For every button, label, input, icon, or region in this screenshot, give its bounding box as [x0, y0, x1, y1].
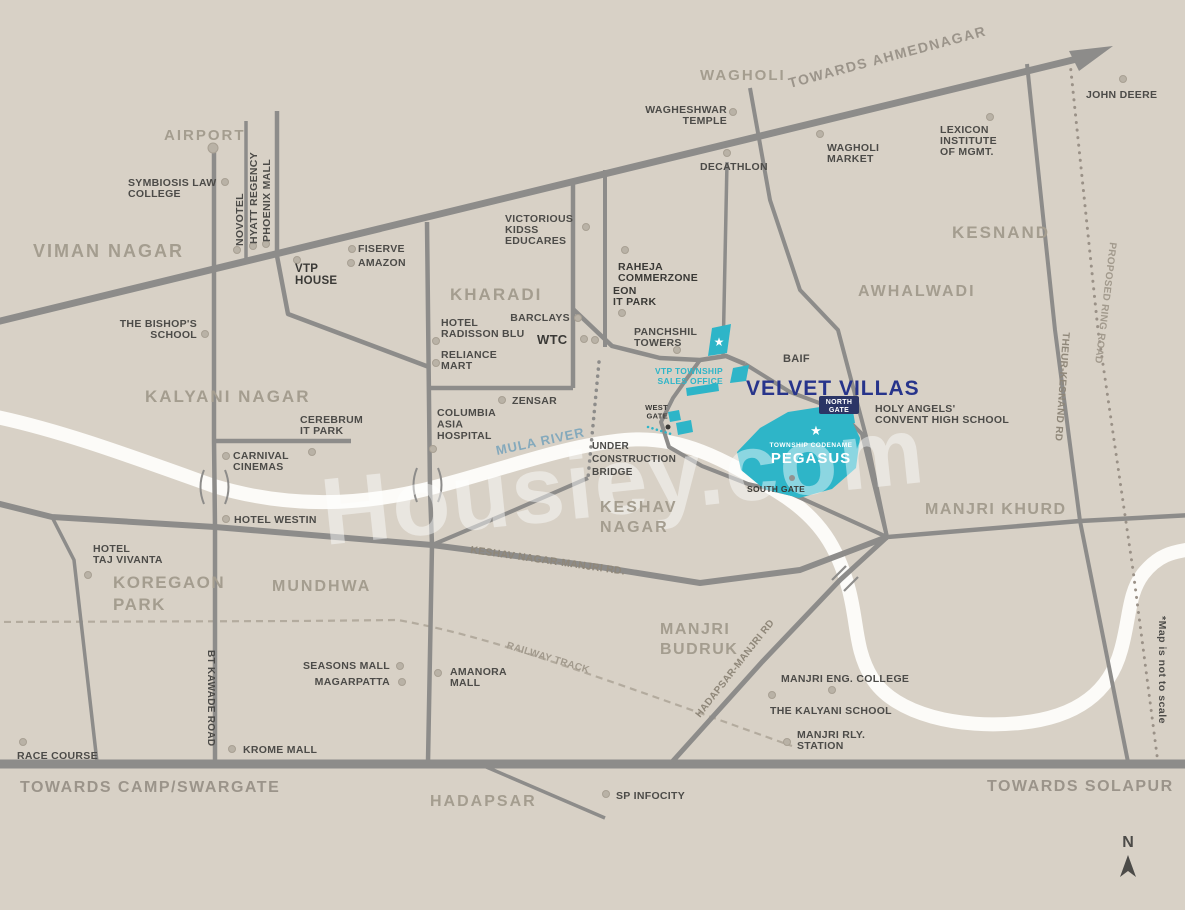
- label-north-gate: NORTHGATE: [826, 399, 852, 414]
- poi-dot: [724, 150, 731, 157]
- poi-dot: [987, 114, 994, 121]
- watermark: Housiey.com: [316, 397, 930, 566]
- region-kesnand: KESNAND: [952, 223, 1050, 242]
- poi-dot: [784, 739, 791, 746]
- poi-barclays: BARCLAYS: [510, 312, 570, 324]
- region-kharadi: KHARADI: [450, 285, 542, 304]
- poi-dot: [397, 663, 404, 670]
- poi-decathlon: DECATHLON: [700, 161, 768, 173]
- region-viman-nagar: VIMAN NAGAR: [33, 241, 184, 261]
- region-manjri-khurd: MANJRI KHURD: [925, 501, 1067, 518]
- region-wagholi: WAGHOLI: [700, 67, 786, 84]
- region-manjri-budruk: MANJRIBUDRUK: [660, 621, 738, 658]
- label-south-gate: SOUTH GATE: [747, 484, 805, 494]
- poi-zensar: ZENSAR: [512, 395, 557, 407]
- region-awhalwadi: AWHALWADI: [858, 283, 976, 300]
- north-label: N: [1108, 835, 1148, 851]
- poi-dot: [229, 746, 236, 753]
- poi-dot: [349, 246, 356, 253]
- region-mundhwa: MUNDHWA: [272, 578, 371, 595]
- poi-dot: [1120, 76, 1127, 83]
- poi-manjri-rly-station: MANJRI RLY.STATION: [797, 729, 865, 752]
- poi-novotel: NOVOTEL: [234, 193, 246, 246]
- poi-dot: [619, 310, 626, 317]
- towards-ahmednagar: TOWARDS AHMEDNAGAR: [787, 23, 989, 91]
- label-railway-track: RAILWAY TRACK: [505, 640, 591, 676]
- poi-eon-it-park: EONIT PARK: [613, 285, 656, 308]
- poi-victorious-kidss: VICTORIOUSKIDSSEDUCARES: [505, 213, 573, 247]
- poi-seasons-mall: SEASONS MALL: [303, 660, 390, 672]
- poi-dot: [234, 247, 241, 254]
- poi-dot: [309, 449, 316, 456]
- poi-wagholi-market: WAGHOLIMARKET: [827, 142, 879, 165]
- label-bt-kawade-road: BT KAWADE ROAD: [205, 650, 216, 746]
- poi-dot: [222, 179, 229, 186]
- poi-dot: [202, 331, 209, 338]
- poi-carnival-cinemas: CARNIVALCINEMAS: [233, 450, 289, 473]
- phoenix-road: [277, 111, 429, 367]
- poi-lexicon-institute: LEXICONINSTITUTEOF MGMT.: [940, 124, 997, 158]
- poi-manjri-eng-college: MANJRI ENG. COLLEGE: [781, 673, 909, 685]
- poi-dot: [223, 516, 230, 523]
- highway-arrowhead: [1069, 46, 1113, 71]
- poi-dot: [817, 131, 824, 138]
- poi-dot: [435, 670, 442, 677]
- map-canvas: Housiey.comAIRPORTVIMAN NAGARWAGHOLIKHAR…: [0, 0, 1185, 910]
- poi-dot: [622, 247, 629, 254]
- poi-holy-angels: HOLY ANGELS'CONVENT HIGH SCHOOL: [875, 403, 1009, 426]
- poi-fiserve: FISERVE: [358, 243, 405, 255]
- poi-dot: [603, 791, 610, 798]
- poi-dot: [223, 453, 230, 460]
- poi-dot: [399, 679, 406, 686]
- poi-kalyani-school: THE KALYANI SCHOOL: [770, 705, 892, 717]
- label-velvet-villas: VELVET VILLAS: [746, 377, 920, 400]
- poi-krome-mall: KROME MALL: [243, 744, 317, 756]
- poi-dot: [730, 109, 737, 116]
- panchshil-star-marker: ★: [714, 335, 725, 349]
- poi-dot: [348, 260, 355, 267]
- poi-hotel-taj-vivanta: HOTELTAJ VIVANTA: [93, 543, 163, 566]
- region-airport: AIRPORT: [164, 127, 246, 144]
- poi-dot: [499, 397, 506, 404]
- pegasus-star-marker: ★: [810, 423, 822, 438]
- poi-john-deere: JOHN DEERE: [1086, 89, 1157, 101]
- label-township-codename: TOWNSHIP CODENAME: [769, 442, 852, 449]
- poi-baif: BAIF: [783, 353, 810, 365]
- manjri-khurd-road: [887, 515, 1185, 537]
- hadapsar-spur: [484, 766, 605, 818]
- region-koregaon-park: KOREGAONPARK: [113, 573, 225, 614]
- towards-solapur: TOWARDS SOLAPUR: [987, 778, 1174, 795]
- poi-vtp-house: VTPHOUSE: [295, 263, 337, 287]
- poi-wagheshwar-temple: WAGHESHWARTEMPLE: [645, 104, 727, 127]
- poi-dot: [583, 224, 590, 231]
- towards-camp-swargate: TOWARDS CAMP/SWARGATE: [20, 779, 280, 796]
- region-hadapsar: HADAPSAR: [430, 793, 537, 810]
- poi-panchshil-towers: PANCHSHILTOWERS: [634, 326, 697, 349]
- west-gate-block-1: [668, 410, 681, 422]
- label-west-gate: WESTGATE: [645, 403, 668, 421]
- railway-track: [0, 620, 792, 746]
- poi-dot: [20, 739, 27, 746]
- poi-dot: [433, 338, 440, 345]
- poi-amazon: AMAZON: [358, 257, 406, 269]
- label-keshav-nagar-manjri-rd: KESHAV NAGAR-MANJRI RD.: [470, 544, 626, 578]
- location-map: Housiey.comAIRPORTVIMAN NAGARWAGHOLIKHAR…: [0, 0, 1185, 910]
- poi-dot: [575, 315, 582, 322]
- north-arrow-icon: [1118, 853, 1138, 879]
- poi-dot: [433, 360, 440, 367]
- poi-amanora-mall: AMANORAMALL: [450, 666, 507, 689]
- poi-cerebrum-it-park: CEREBRUMIT PARK: [300, 414, 363, 437]
- north-indicator: N: [1108, 835, 1148, 879]
- poi-dot: [592, 337, 599, 344]
- poi-dot: [769, 692, 776, 699]
- poi-magarpatta: MAGARPATTA: [315, 676, 390, 688]
- poi-bishops-school: THE BISHOP'SSCHOOL: [120, 318, 198, 341]
- poi-phoenix-mall: PHOENIX MALL: [261, 159, 273, 242]
- poi-symbiosis-law-college: SYMBIOSIS LAWCOLLEGE: [128, 177, 217, 200]
- poi-hotel-westin: HOTEL WESTIN: [234, 514, 317, 526]
- poi-dot: [829, 687, 836, 694]
- label-vtp-township-sales-office: VTP TOWNSHIPSALES OFFICE: [655, 366, 723, 386]
- poi-columbia-asia-hospital: COLUMBIAASIAHOSPITAL: [437, 407, 496, 442]
- poi-sp-infocity: SP INFOCITY: [616, 790, 685, 802]
- map-scale-note: *Map is not to scale: [1156, 616, 1168, 724]
- poi-reliance-mart: RELIANCEMART: [441, 349, 497, 372]
- poi-race-course: RACE COURSE: [17, 750, 98, 762]
- poi-wtc: WTC: [537, 332, 568, 347]
- region-kalyani-nagar: KALYANI NAGAR: [145, 387, 311, 406]
- poi-raheja-commerzone: RAHEJACOMMERZONE: [618, 261, 698, 284]
- koregaon-road: [52, 517, 97, 762]
- label-pegasus: PEGASUS: [771, 450, 851, 467]
- poi-dot: [581, 336, 588, 343]
- poi-dot: [85, 572, 92, 579]
- poi-dot: [208, 143, 218, 153]
- poi-hyatt-regency: HYATT REGENCY: [248, 152, 260, 244]
